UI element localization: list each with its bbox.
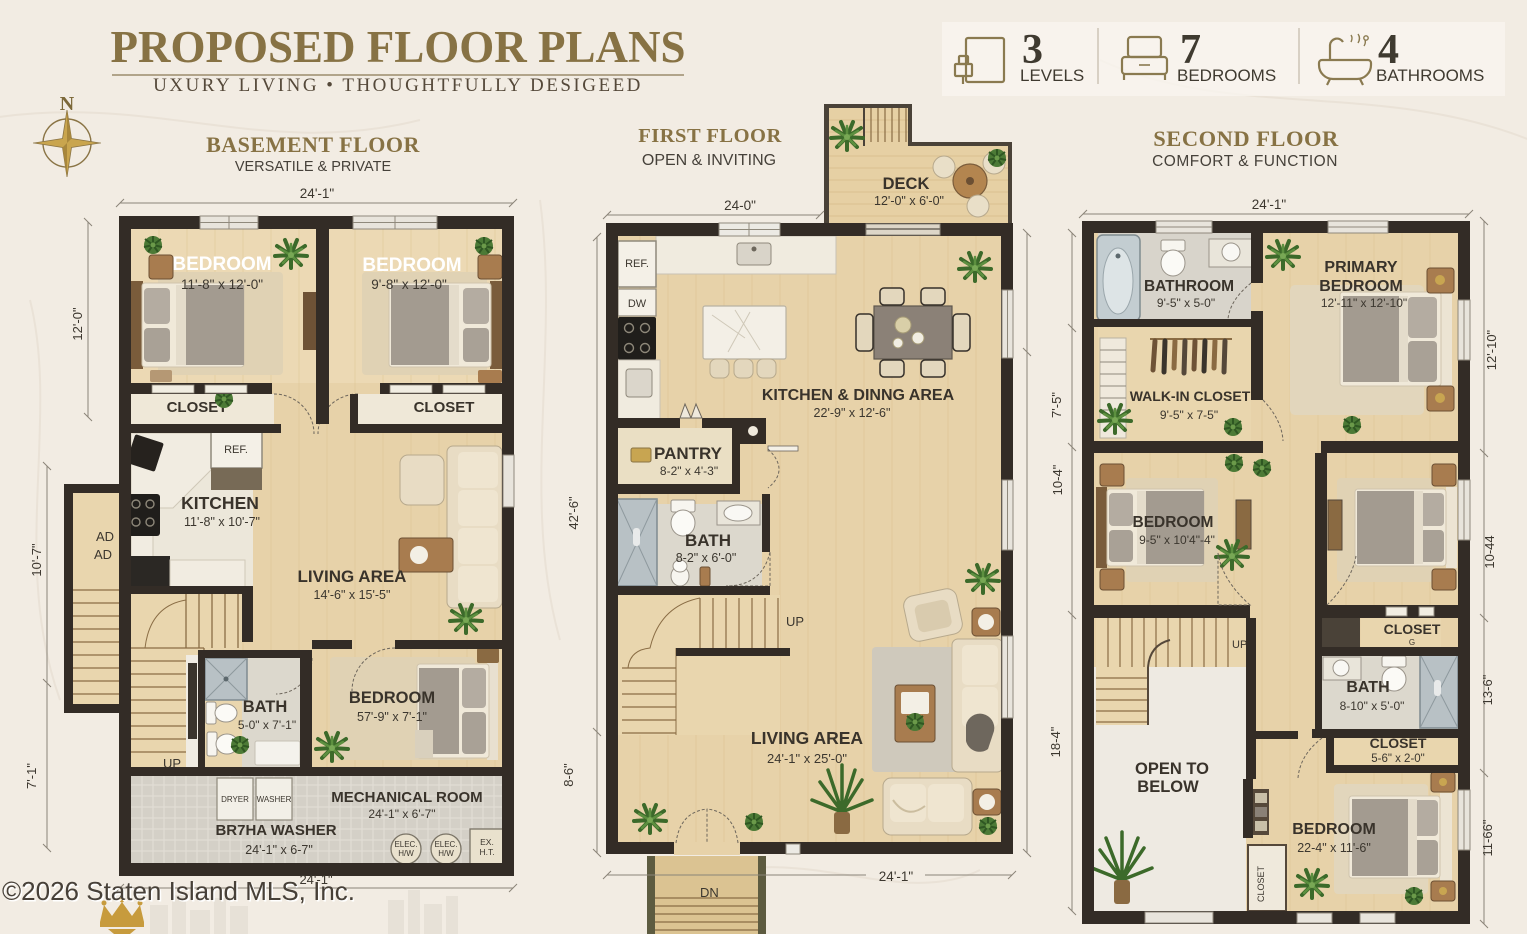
- svg-text:REF.: REF.: [224, 444, 248, 456]
- svg-text:BEDROOM: BEDROOM: [1319, 278, 1403, 295]
- svg-text:WASHER: WASHER: [257, 795, 292, 804]
- svg-text:LEVELS: LEVELS: [1020, 66, 1084, 85]
- svg-text:24'-1": 24'-1": [300, 186, 335, 201]
- svg-text:11'-8" x 10'-7": 11'-8" x 10'-7": [184, 515, 260, 529]
- svg-text:BATH: BATH: [685, 531, 731, 550]
- svg-text:42'-6": 42'-6": [566, 496, 581, 530]
- svg-text:12'-0": 12'-0": [70, 307, 85, 341]
- svg-text:BATH: BATH: [243, 698, 288, 716]
- svg-text:24'-1" x 25'-0": 24'-1" x 25'-0": [767, 751, 847, 766]
- svg-text:UXURY LIVING • THOUGHTFULLY DE: UXURY LIVING • THOUGHTFULLY DESIGEED: [153, 75, 643, 96]
- svg-text:10-44: 10-44: [1482, 535, 1497, 568]
- svg-text:SECOND FLOOR: SECOND FLOOR: [1153, 126, 1339, 151]
- svg-text:22'-9" x 12'-6": 22'-9" x 12'-6": [814, 406, 891, 420]
- svg-text:24'-1": 24'-1": [1252, 197, 1287, 212]
- svg-text:18-4": 18-4": [1048, 726, 1063, 757]
- svg-text:MECHANICAL ROOM: MECHANICAL ROOM: [331, 789, 482, 806]
- svg-text:AD: AD: [94, 547, 112, 562]
- svg-text:7'-5": 7'-5": [1049, 392, 1064, 418]
- svg-text:ELEC.: ELEC.: [394, 840, 417, 849]
- svg-text:H/W: H/W: [438, 849, 454, 858]
- svg-text:KITCHEN & DINNG AREA: KITCHEN & DINNG AREA: [762, 387, 955, 404]
- svg-text:8-2" x 6'-0": 8-2" x 6'-0": [676, 551, 737, 565]
- svg-text:WALK-IN CLOSET: WALK-IN CLOSET: [1130, 388, 1251, 404]
- svg-text:BEDROOM: BEDROOM: [349, 689, 435, 707]
- svg-text:UP: UP: [1232, 639, 1247, 651]
- svg-text:5-6" x 2-0": 5-6" x 2-0": [1371, 753, 1425, 765]
- svg-text:13-6": 13-6": [1480, 674, 1495, 705]
- svg-text:24'-1" x 6-7": 24'-1" x 6-7": [245, 843, 313, 857]
- svg-text:PRIMARY: PRIMARY: [1324, 259, 1398, 276]
- svg-text:DECK: DECK: [883, 175, 930, 193]
- svg-text:24'-1" x 6'-7": 24'-1" x 6'-7": [368, 807, 435, 821]
- svg-text:11-66": 11-66": [1480, 819, 1495, 856]
- svg-text:9'-8" x 12'-0": 9'-8" x 12'-0": [371, 277, 447, 292]
- svg-text:AD: AD: [96, 529, 114, 544]
- svg-text:PANTRY: PANTRY: [654, 444, 723, 463]
- svg-text:14'-6" x 15'-5": 14'-6" x 15'-5": [314, 588, 391, 602]
- svg-text:24'-1": 24'-1": [879, 869, 914, 884]
- svg-text:11'-8" x 12'-0": 11'-8" x 12'-0": [181, 277, 263, 292]
- svg-text:LIVING AREA: LIVING AREA: [751, 728, 863, 748]
- svg-text:PROPOSED FLOOR PLANS: PROPOSED FLOOR PLANS: [110, 22, 685, 72]
- svg-text:FIRST FLOOR: FIRST FLOOR: [638, 125, 782, 147]
- svg-text:COMFORT & FUNCTION: COMFORT & FUNCTION: [1152, 153, 1338, 170]
- svg-text:BELOW: BELOW: [1137, 778, 1199, 796]
- svg-text:BEDROOM: BEDROOM: [1292, 821, 1376, 838]
- svg-text:G: G: [1409, 638, 1415, 647]
- svg-text:KITCHEN: KITCHEN: [181, 493, 259, 513]
- svg-text:LIVING AREA: LIVING AREA: [298, 567, 407, 586]
- svg-text:OPEN TO: OPEN TO: [1135, 760, 1209, 778]
- svg-text:CLOSET: CLOSET: [414, 399, 475, 416]
- svg-text:5-0" x 7'-1": 5-0" x 7'-1": [238, 718, 296, 732]
- svg-text:24-0": 24-0": [724, 198, 756, 213]
- svg-text:8-10" x 5'-0": 8-10" x 5'-0": [1340, 699, 1405, 713]
- svg-text:CLOSET: CLOSET: [1256, 865, 1266, 902]
- svg-text:OPEN & INVITING: OPEN & INVITING: [642, 152, 776, 169]
- svg-text:9'-5" x 7-5": 9'-5" x 7-5": [1160, 408, 1218, 422]
- svg-text:9'-5" x 5-0": 9'-5" x 5-0": [1157, 296, 1215, 310]
- svg-text:BASEMENT FLOOR: BASEMENT FLOOR: [206, 132, 420, 157]
- svg-text:H.T.: H.T.: [479, 847, 494, 857]
- svg-text:BEDROOM: BEDROOM: [1133, 514, 1214, 531]
- svg-text:BR7HA WASHER: BR7HA WASHER: [215, 822, 336, 839]
- svg-text:12'-0" x 6'-0": 12'-0" x 6'-0": [874, 194, 944, 208]
- svg-text:22-4" x 11'-6": 22-4" x 11'-6": [1297, 841, 1371, 855]
- svg-text:12'-11" x 12'-10": 12'-11" x 12'-10": [1321, 296, 1407, 310]
- svg-text:7'-1": 7'-1": [24, 763, 39, 789]
- svg-text:8-6": 8-6": [561, 763, 576, 787]
- svg-text:BATHROOMS: BATHROOMS: [1376, 66, 1484, 85]
- svg-text:©2026 Staten Island MLS, Inc.: ©2026 Staten Island MLS, Inc.: [2, 876, 355, 906]
- svg-text:9-5" x 10'4"-4": 9-5" x 10'4"-4": [1139, 533, 1215, 547]
- svg-text:BEDROOMS: BEDROOMS: [1177, 66, 1276, 85]
- svg-text:10-4": 10-4": [1050, 464, 1065, 495]
- svg-text:DW: DW: [628, 298, 647, 310]
- svg-text:10'-7": 10'-7": [29, 543, 44, 577]
- svg-text:8-2" x 4'-3": 8-2" x 4'-3": [660, 464, 718, 478]
- svg-text:BEDROOM: BEDROOM: [362, 255, 461, 276]
- svg-text:12'-10": 12'-10": [1484, 329, 1499, 370]
- svg-text:VERSATILE & PRIVATE: VERSATILE & PRIVATE: [235, 159, 392, 175]
- svg-text:ELEC.: ELEC.: [434, 840, 457, 849]
- svg-text:EX.: EX.: [480, 837, 494, 847]
- svg-text:DRYER: DRYER: [221, 795, 249, 804]
- svg-text:BATH: BATH: [1346, 679, 1389, 696]
- svg-text:BATHROOM: BATHROOM: [1144, 278, 1234, 295]
- svg-text:REF.: REF.: [625, 258, 649, 270]
- svg-text:CLOSET: CLOSET: [1384, 621, 1441, 637]
- svg-text:57'-9" x 7'-1": 57'-9" x 7'-1": [357, 710, 427, 724]
- svg-text:DN: DN: [700, 885, 719, 900]
- svg-text:BEDROOM: BEDROOM: [172, 254, 271, 275]
- svg-text:UP: UP: [786, 614, 804, 629]
- svg-text:H/W: H/W: [398, 849, 414, 858]
